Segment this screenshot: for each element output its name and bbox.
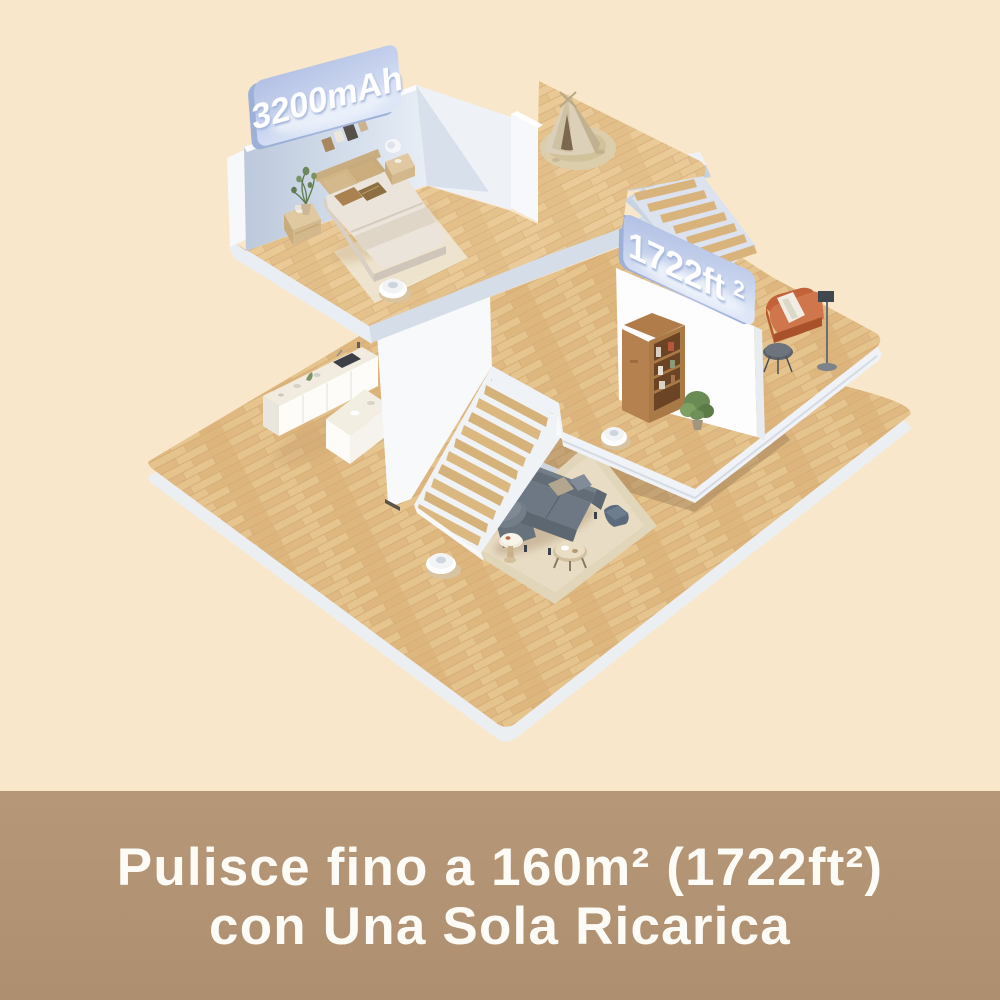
svg-text:2: 2 [733, 273, 745, 304]
svg-text:con Una Sola Ricarica: con Una Sola Ricarica [209, 897, 791, 956]
svg-text:Pulisce fino a 160m² (1722ft²): Pulisce fino a 160m² (1722ft²) [117, 838, 883, 897]
